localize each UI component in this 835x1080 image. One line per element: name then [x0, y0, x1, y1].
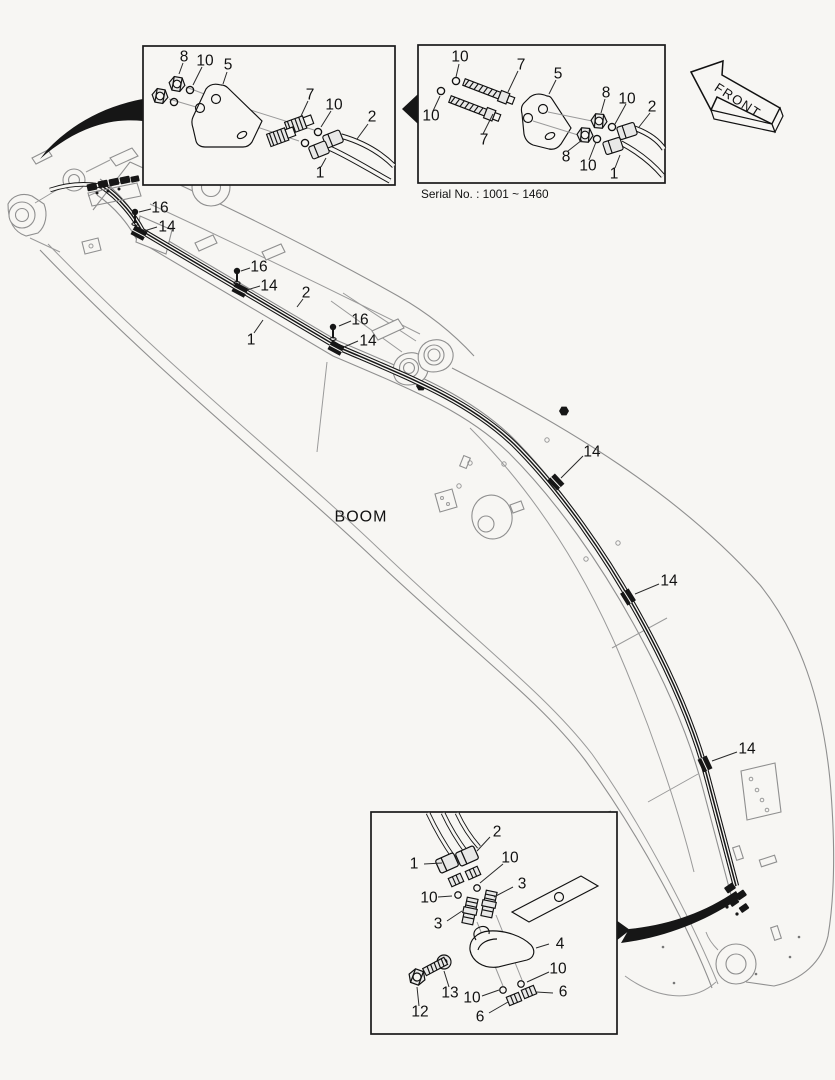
part-label-2: 2 — [302, 285, 311, 302]
clamp-bolt — [234, 268, 240, 285]
detail-arrowhead-left-icon — [402, 94, 418, 124]
part-label-10: 10 — [420, 890, 438, 907]
boom-label: BOOM — [335, 509, 388, 526]
boom-piping-diagram: FRONT 16 14 16 14 2 1 16 14 14 14 14 BOO… — [0, 0, 835, 1080]
part-label-10: 10 — [463, 990, 481, 1007]
part-label-2: 2 — [648, 99, 657, 116]
part-label-6: 6 — [476, 1009, 485, 1026]
part-label-8: 8 — [562, 149, 571, 166]
part-label-4: 4 — [556, 936, 565, 953]
hex-bolt-icon — [559, 407, 569, 416]
part-label-2: 2 — [493, 824, 502, 841]
part-label-10: 10 — [501, 850, 519, 867]
part-label-1: 1 — [610, 166, 619, 183]
part-label-6: 6 — [559, 984, 568, 1001]
part-label-14: 14 — [359, 333, 377, 350]
inset-box-bottom — [371, 812, 617, 1034]
part-label-14: 14 — [158, 219, 176, 236]
part-label-7: 7 — [517, 57, 526, 74]
part-label-10: 10 — [196, 53, 214, 70]
tip-hose-fittings — [86, 175, 141, 206]
boom-foot-boss — [706, 932, 756, 984]
part-label-3: 3 — [518, 876, 527, 893]
part-label-8: 8 — [180, 49, 189, 66]
part-label-10: 10 — [618, 91, 636, 108]
front-direction-arrow: FRONT — [691, 61, 783, 132]
part-label-10: 10 — [579, 158, 597, 175]
part-label-14: 14 — [583, 444, 601, 461]
part-label-5: 5 — [224, 57, 233, 74]
main-leader-lines — [139, 209, 737, 761]
part-label-10: 10 — [549, 961, 567, 978]
part-label-14: 14 — [260, 278, 278, 295]
part-label-10: 10 — [422, 108, 440, 125]
part-label-7: 7 — [480, 132, 489, 149]
part-label-16: 16 — [351, 312, 368, 329]
part-label-13: 13 — [441, 985, 458, 1002]
part-label-10: 10 — [325, 97, 343, 114]
part-label-14: 14 — [660, 573, 678, 590]
pipe-clamps — [130, 209, 712, 773]
part-label-7: 7 — [306, 87, 315, 104]
part-label-1: 1 — [410, 856, 419, 873]
part-label-14: 14 — [738, 741, 756, 758]
clamp-bolt — [330, 324, 336, 341]
part-label-16: 16 — [151, 200, 168, 217]
serial-number-caption: Serial No. : 1001 ~ 1460 — [421, 187, 549, 201]
part-label-2: 2 — [368, 109, 377, 126]
boom-boss — [435, 489, 524, 543]
hydraulic-pipes — [50, 175, 749, 915]
part-label-8: 8 — [602, 85, 611, 102]
parts-diagram-page: FRONT 16 14 16 14 2 1 16 14 14 14 14 BOO… — [0, 0, 835, 1080]
part-label-3: 3 — [434, 916, 443, 933]
part-label-10: 10 — [451, 49, 469, 66]
part-label-16: 16 — [250, 259, 267, 276]
part-label-1: 1 — [316, 165, 325, 182]
part-label-5: 5 — [554, 66, 563, 83]
part-label-1: 1 — [247, 332, 256, 349]
part-label-12: 12 — [411, 1004, 428, 1021]
